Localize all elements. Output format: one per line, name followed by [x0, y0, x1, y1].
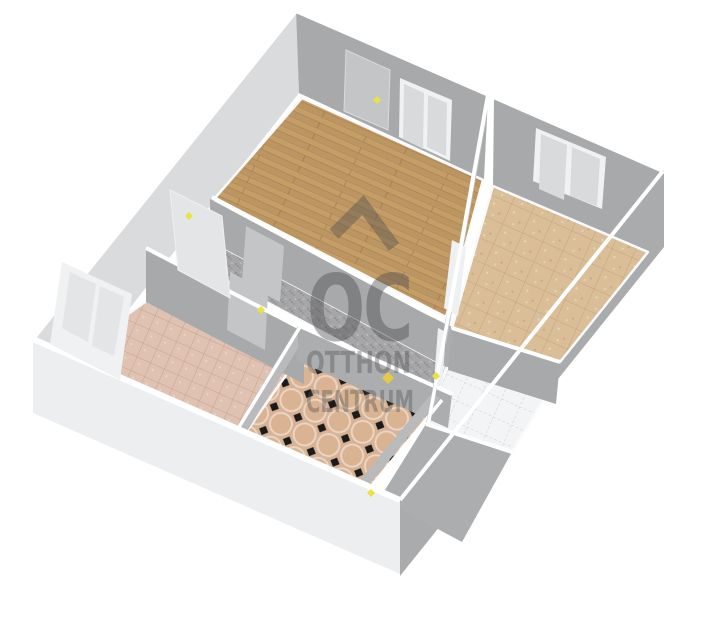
window-pane: [427, 95, 447, 156]
watermark-line1: OTTHON: [306, 346, 411, 381]
window-pane: [539, 134, 567, 200]
floor-plan-3d-render: OC OTTHON CENTRUM: [0, 0, 721, 617]
window-pane: [403, 84, 424, 149]
floor-plan-screenshot: OC OTTHON CENTRUM: [0, 0, 721, 617]
watermark-line2: CENTRUM: [306, 385, 414, 420]
